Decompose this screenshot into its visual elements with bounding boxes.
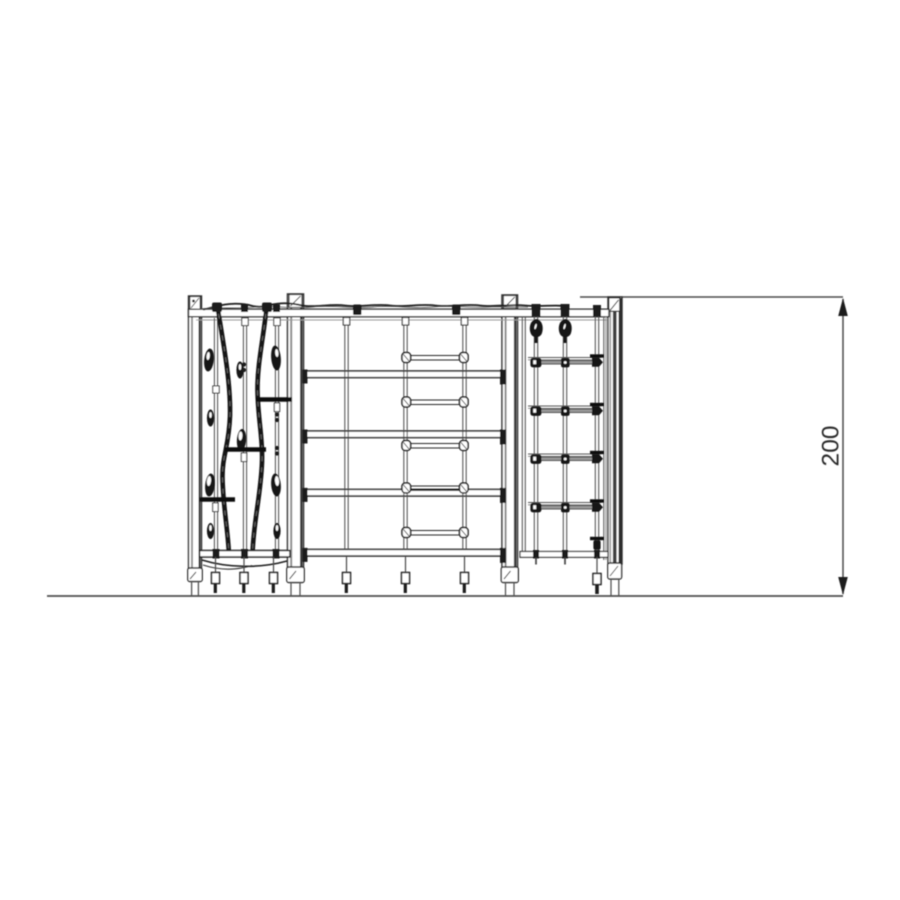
svg-text:200: 200 <box>818 426 845 467</box>
